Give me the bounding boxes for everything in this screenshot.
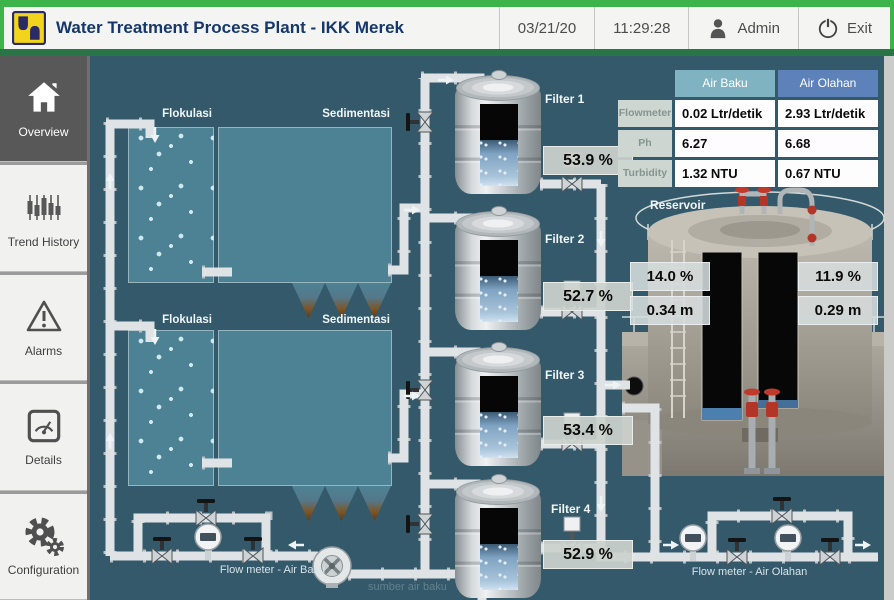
time-display: 11:29:28: [594, 7, 688, 49]
filter-2-label: Filter 2: [545, 232, 584, 246]
ph-air-olahan-value: 6.68: [778, 130, 878, 157]
trend-chart-icon: [23, 188, 65, 228]
sedimentation-tank-label: Sedimentasi: [290, 314, 390, 326]
filter-3-level-value: 53.4 %: [543, 416, 633, 445]
power-icon: [817, 17, 839, 39]
water-quality-table: Air Baku Air Olahan Flowmeter 0.02 Ltr/d…: [618, 70, 878, 187]
pu-logo-icon: [12, 11, 46, 45]
filter-level-window: [480, 508, 518, 590]
sidebar-item-label: Trend History: [8, 235, 80, 249]
filter-2-level-value: 52.7 %: [543, 282, 633, 311]
user-icon: [707, 17, 729, 39]
reservoir-right-percent: 11.9 %: [798, 262, 878, 291]
header-divider: [0, 49, 894, 56]
row-label-turbidity: Turbidity: [618, 160, 672, 187]
row-label-flowmeter: Flowmeter: [618, 100, 672, 127]
filter-level-window: [480, 240, 518, 322]
sidebar-item-label: Alarms: [25, 344, 62, 358]
column-header-air-olahan: Air Olahan: [778, 70, 878, 97]
flocculation-tank-label: Flokulasi: [128, 314, 212, 326]
sidebar-item-configuration[interactable]: Configuration: [0, 494, 87, 600]
filter-1-label: Filter 1: [545, 92, 584, 106]
turbidity-air-baku-value: 1.32 NTU: [675, 160, 775, 187]
flocculation-tank-1: [128, 127, 214, 283]
filter-4-label: Filter 4: [551, 502, 590, 516]
user-label: Admin: [737, 20, 780, 37]
turbidity-air-olahan-value: 0.67 NTU: [778, 160, 878, 187]
header-bar: Water Treatment Process Plant - IKK Mere…: [0, 7, 894, 49]
sedimentation-tank-1: [218, 127, 392, 283]
raw-water-source-label: sumber air baku: [368, 581, 447, 593]
exit-label: Exit: [847, 20, 872, 37]
sedimentation-tank-2: [218, 330, 392, 486]
user-button[interactable]: Admin: [688, 7, 798, 49]
sidebar-item-overview[interactable]: Overview: [0, 56, 87, 162]
date-display: 03/21/20: [499, 7, 594, 49]
top-accent-bar: [0, 0, 894, 7]
page-title: Water Treatment Process Plant - IKK Mere…: [56, 18, 404, 38]
alarm-warning-icon: [22, 297, 66, 337]
flow-meter-air-baku-label: Flow meter - Air Baku: [200, 564, 345, 576]
ph-air-baku-value: 6.27: [675, 130, 775, 157]
app-window: Water Treatment Process Plant - IKK Mere…: [0, 0, 894, 600]
meter-gauge-icon: [23, 406, 65, 446]
gears-icon: [22, 516, 66, 556]
sidebar-item-trend-history[interactable]: Trend History: [0, 165, 87, 271]
filter-2-drum: [455, 222, 541, 330]
flowmeter-air-baku-value: 0.02 Ltr/detik: [675, 100, 775, 127]
filter-4-level-value: 52.9 %: [543, 540, 633, 569]
home-icon: [23, 78, 65, 118]
sidebar-item-alarms[interactable]: Alarms: [0, 275, 87, 381]
flocculation-tank-2: [128, 330, 214, 486]
filter-3-label: Filter 3: [545, 368, 584, 382]
flocculation-tank-label: Flokulasi: [128, 108, 212, 120]
sidebar: Overview Trend History: [0, 56, 90, 600]
column-header-air-baku: Air Baku: [675, 70, 775, 97]
sidebar-item-label: Overview: [18, 125, 68, 139]
window-edge: [884, 56, 894, 600]
reservoir-label: Reservoir: [650, 198, 705, 212]
sedimentation-tank-label: Sedimentasi: [290, 108, 390, 120]
filter-4-drum: [455, 490, 541, 598]
reservoir-right-level: 0.29 m: [798, 296, 878, 325]
filter-level-window: [480, 104, 518, 186]
reservoir-left-percent: 14.0 %: [630, 262, 710, 291]
row-label-ph: Ph: [618, 130, 672, 157]
flow-meter-air-olahan-label: Flow meter - Air Olahan: [672, 566, 827, 578]
sidebar-item-label: Configuration: [8, 563, 79, 577]
app-logo: [12, 11, 46, 45]
exit-button[interactable]: Exit: [798, 7, 890, 49]
reservoir-left-level: 0.34 m: [630, 296, 710, 325]
filter-3-drum: [455, 358, 541, 466]
sidebar-item-details[interactable]: Details: [0, 384, 87, 490]
filter-level-window: [480, 376, 518, 458]
flowmeter-air-olahan-value: 2.93 Ltr/detik: [778, 100, 878, 127]
filter-1-drum: [455, 86, 541, 194]
sidebar-item-label: Details: [25, 453, 62, 467]
